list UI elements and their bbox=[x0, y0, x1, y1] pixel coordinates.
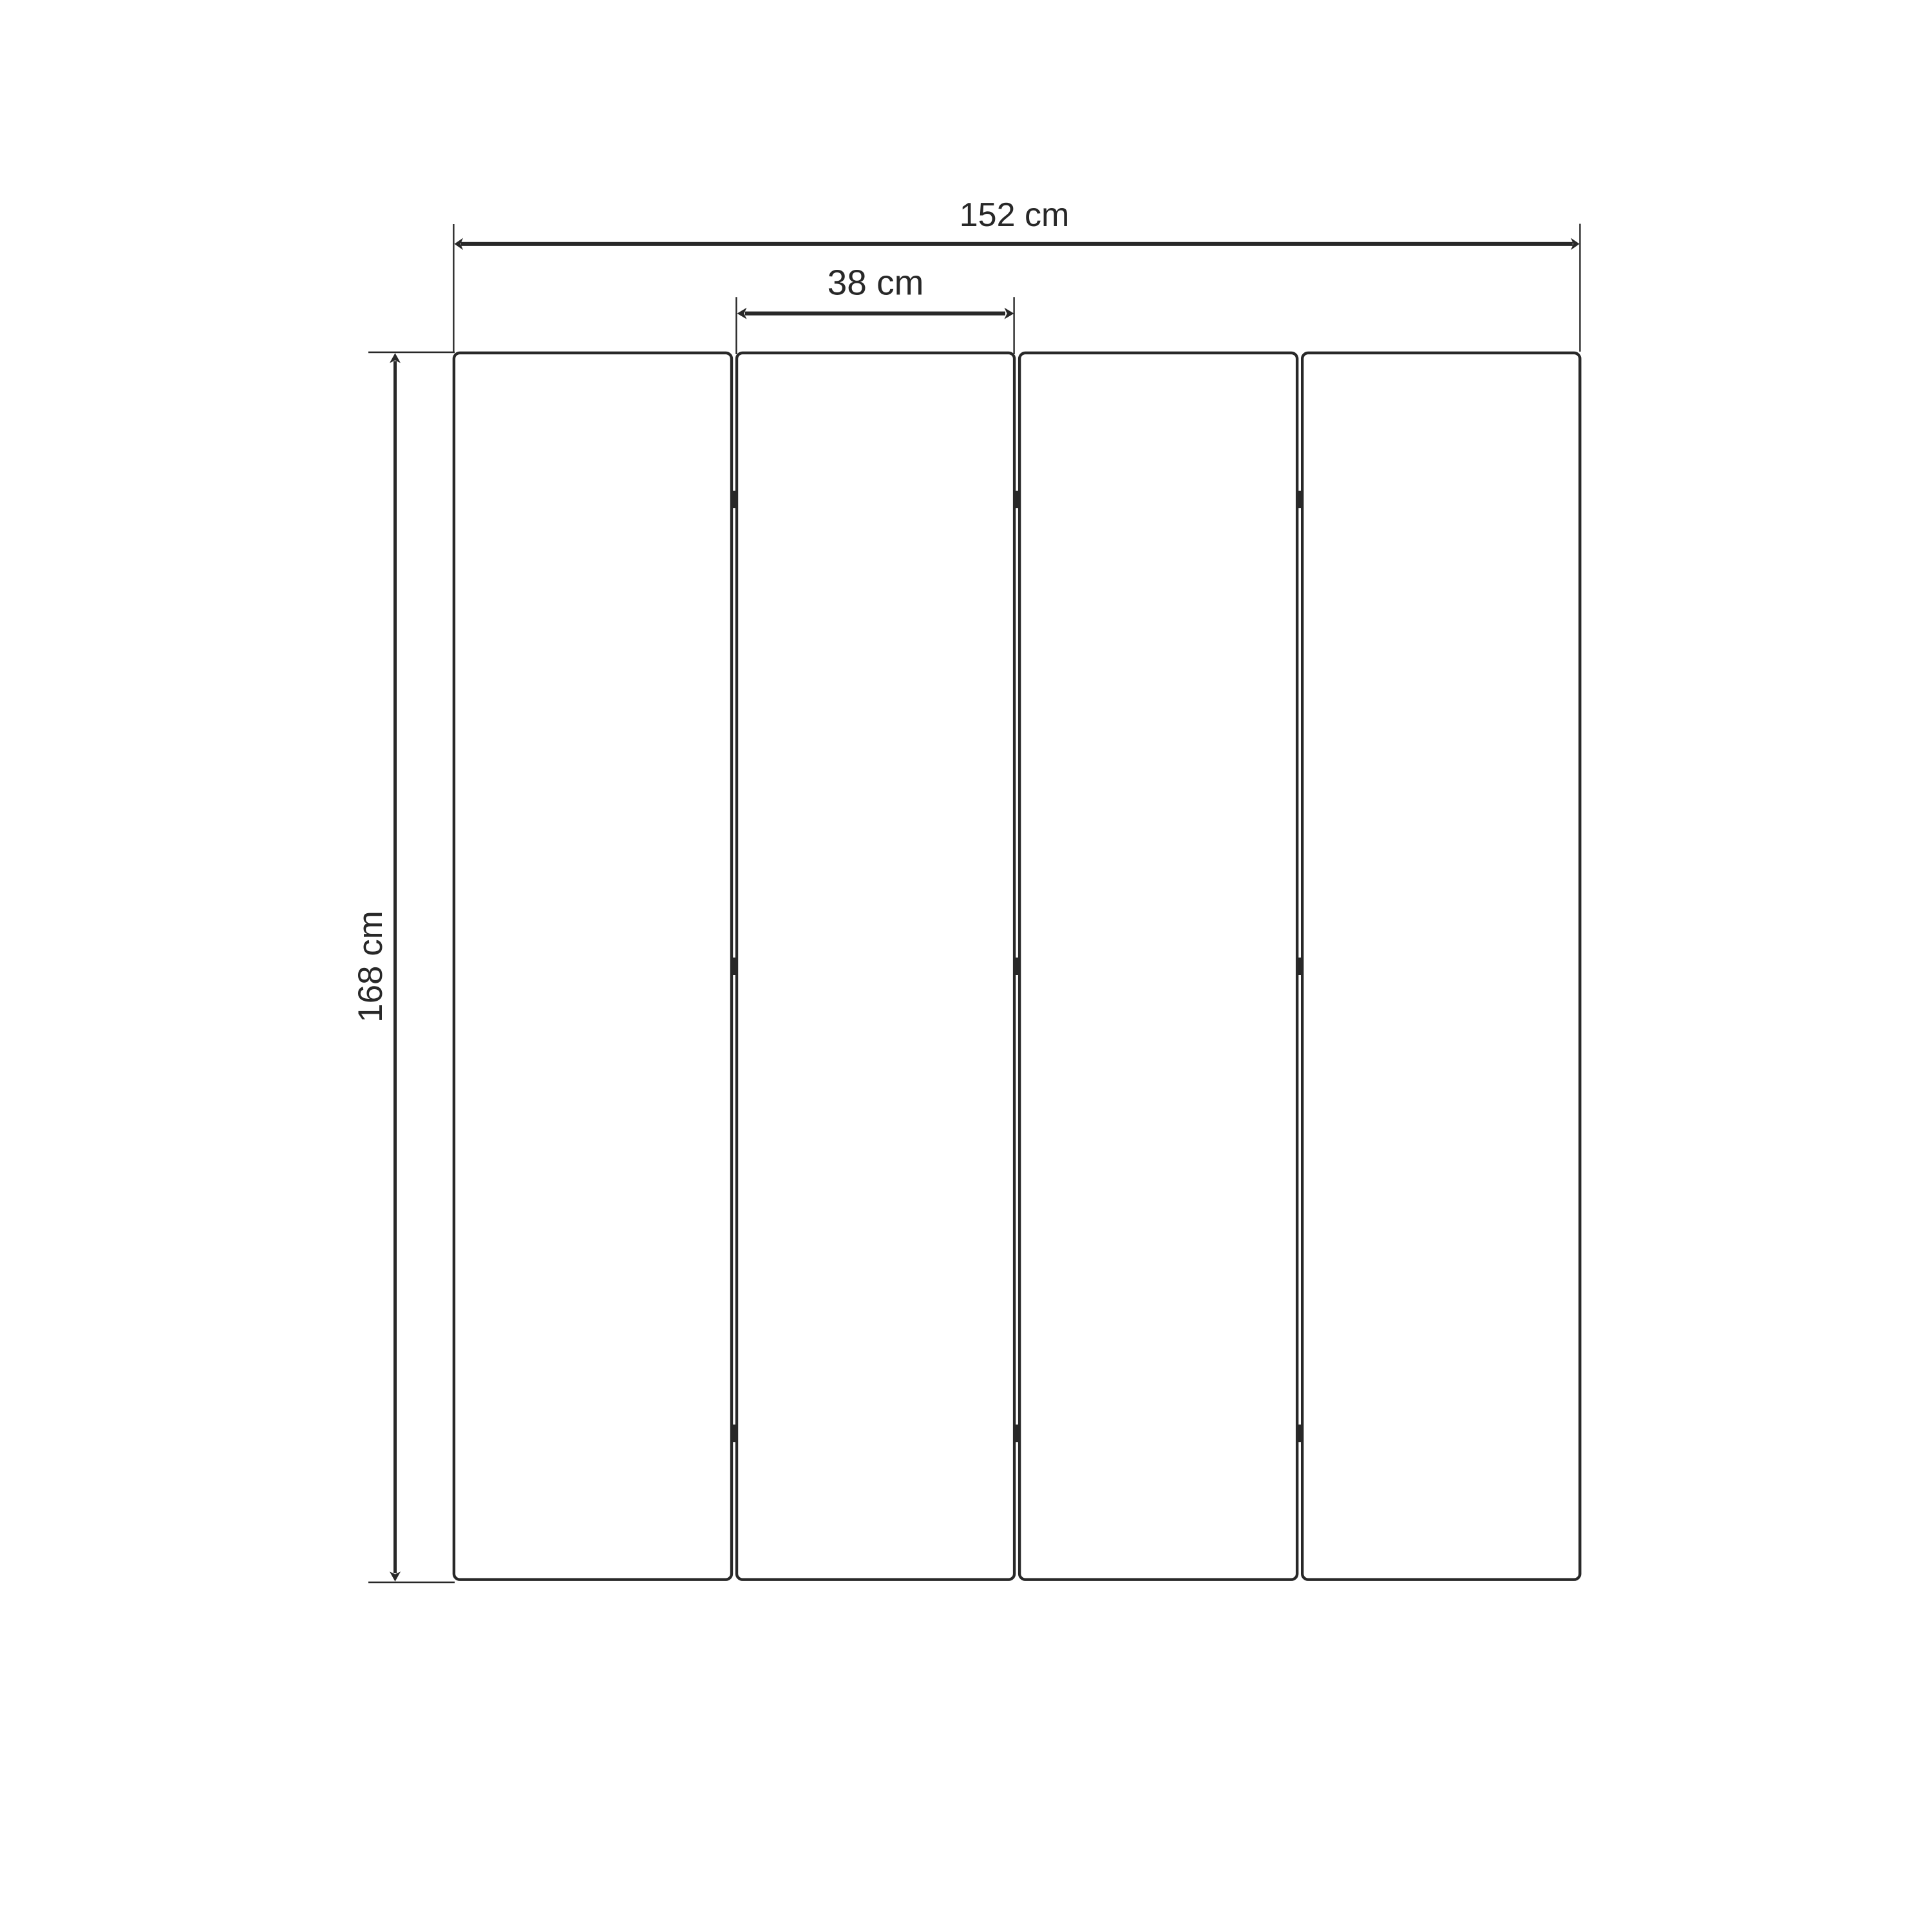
svg-text:168 cm: 168 cm bbox=[352, 911, 390, 1023]
svg-text:152 cm: 152 cm bbox=[960, 196, 1070, 234]
svg-text:38 cm: 38 cm bbox=[828, 262, 924, 302]
